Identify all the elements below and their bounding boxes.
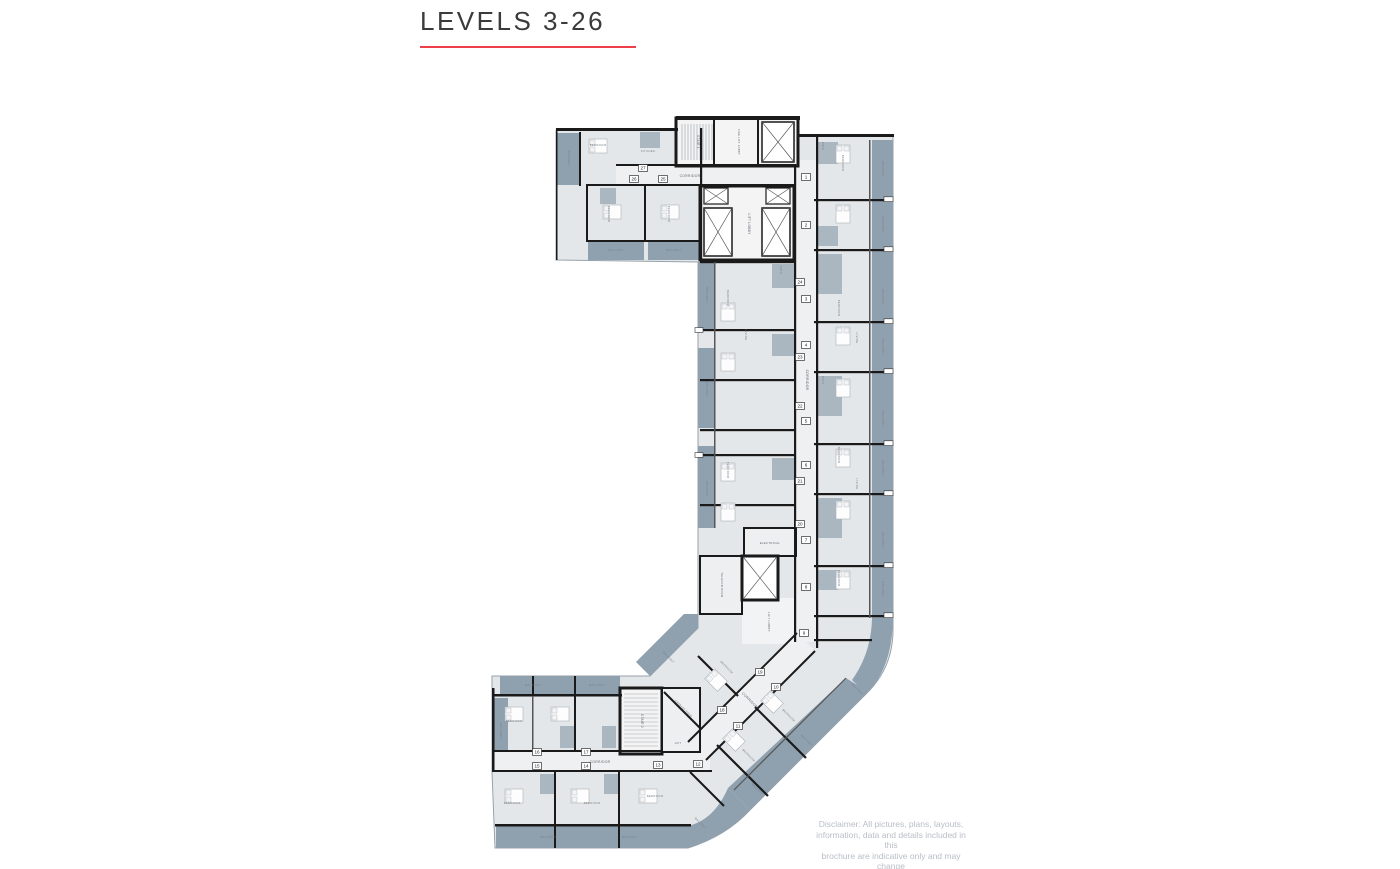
room-label: BALCONY	[881, 339, 885, 354]
area-label: FIRE LIFT LOBBY	[737, 129, 741, 155]
room-label: LIVING	[855, 479, 859, 490]
svg-text:16: 16	[534, 750, 540, 755]
unit-badge: 7	[802, 537, 811, 544]
bath-room	[600, 188, 616, 204]
room-label: BATH	[779, 266, 783, 274]
room-label: BALCONY	[589, 683, 604, 687]
unit-badge: 9	[800, 630, 809, 637]
room-label: BALCONY	[881, 216, 885, 231]
unit-badge: 14	[582, 763, 591, 770]
room-label: BALCONY	[540, 835, 555, 839]
lift-shaft-icon	[704, 188, 728, 204]
room-label: BATH	[821, 376, 825, 384]
svg-text:14: 14	[583, 764, 589, 769]
svg-text:1: 1	[805, 175, 808, 180]
area-label: LIFT LOBBY	[767, 612, 771, 632]
unit-badge: 24	[796, 279, 805, 286]
bath-room	[640, 132, 660, 148]
disclaimer-line: information, data and details included i…	[816, 830, 966, 851]
room-label: BALCONY	[567, 150, 571, 165]
svg-text:26: 26	[631, 177, 637, 182]
room-label: BEDROOM	[726, 462, 730, 479]
room-label: BALCONY	[881, 532, 885, 547]
bath-room	[818, 254, 842, 294]
svg-text:11: 11	[736, 724, 741, 729]
svg-text:5: 5	[805, 419, 808, 424]
bath-room	[818, 570, 838, 590]
area-label: TELECOM ROOM	[720, 573, 724, 598]
unit-badge: 20	[796, 521, 805, 528]
room-label: BALCONY	[666, 248, 681, 252]
unit-badge: 18	[718, 707, 727, 714]
bath-room	[772, 458, 794, 480]
room-label: BEDROOM	[726, 290, 730, 307]
area-label: LIFT	[675, 741, 682, 745]
svg-text:9: 9	[803, 631, 806, 636]
lift-shaft-icon	[762, 208, 790, 256]
disclaimer-line: Disclaimer: All pictures, plans, layouts…	[816, 819, 966, 830]
bath-room	[772, 334, 794, 356]
svg-text:6: 6	[805, 463, 808, 468]
unit-badge: 5	[802, 418, 811, 425]
room-label: BEDROOM	[667, 206, 671, 223]
room-label: BALCONY	[622, 835, 637, 839]
bath-room	[560, 726, 574, 748]
svg-text:10: 10	[773, 685, 779, 690]
room-label: KITCHEN	[641, 149, 655, 153]
svg-text:3: 3	[805, 297, 808, 302]
area-label: STAIR 2	[640, 714, 644, 728]
brochure-page: LEVELS 3-26	[0, 0, 1400, 869]
svg-text:25: 25	[660, 177, 666, 182]
lift-shaft-icon	[704, 208, 732, 256]
svg-text:4: 4	[805, 343, 808, 348]
room-label: BATH	[821, 142, 825, 150]
room-label: BALCONY	[881, 581, 885, 596]
unit-badge: 23	[796, 354, 805, 361]
room-label: BALCONY	[881, 411, 885, 426]
unit-badge: 15	[533, 763, 542, 770]
room-label: BEDROOM	[584, 801, 601, 805]
disclaimer: Disclaimer: All pictures, plans, layouts…	[816, 819, 966, 869]
unit-badge: 19	[756, 669, 765, 676]
bath-room	[602, 726, 616, 748]
room-label: BEDROOM	[504, 801, 521, 805]
unit-badge: 6	[802, 462, 811, 469]
svg-text:21: 21	[797, 479, 803, 484]
room-label: BALCONY	[705, 481, 709, 496]
room-label: BALCONY	[881, 289, 885, 304]
svg-text:17: 17	[583, 750, 589, 755]
disclaimer-line: brochure are indicative only and may cha…	[816, 851, 966, 869]
room-label: BEDROOM	[837, 447, 841, 464]
bath-room	[540, 774, 554, 794]
unit-badge: 10	[772, 684, 781, 691]
svg-text:19: 19	[757, 670, 763, 675]
svg-text:8: 8	[805, 585, 808, 590]
area-label: CORRIDOR	[680, 174, 701, 178]
svg-text:27: 27	[640, 166, 646, 171]
lift-shaft-icon	[762, 122, 794, 162]
unit-badge: 22	[796, 403, 805, 410]
svg-text:15: 15	[534, 764, 540, 769]
area-label: CORRIDOR	[805, 370, 809, 391]
room-label: BEDROOM	[590, 143, 607, 147]
unit-badge: 21	[796, 478, 805, 485]
area-label: STAIR 1	[696, 135, 700, 149]
unit-badge: 26	[630, 176, 639, 183]
unit-badge: 13	[654, 762, 663, 769]
svg-text:7: 7	[805, 538, 808, 543]
floor-plan-svg: CORRIDORCORRIDORCORRIDORCORRIDORSTAIR 1F…	[0, 0, 1400, 869]
room-label: BEDROOM	[841, 155, 845, 172]
room-label: BALCONY	[705, 287, 709, 302]
unit-badge: 25	[659, 176, 668, 183]
room-label: BEDROOM	[837, 570, 841, 587]
room-label: BEDROOM	[837, 300, 841, 317]
room-label: BALCONY	[705, 381, 709, 396]
bath-room	[818, 226, 838, 246]
room-label: LIVING	[744, 330, 748, 341]
room-label: BEDROOM	[506, 719, 523, 723]
room-label: BEDROOM	[647, 794, 664, 798]
svg-text:12: 12	[695, 762, 701, 767]
unit-badge: 11	[734, 723, 743, 730]
unit-badge: 16	[533, 749, 542, 756]
room-label: BALCONY	[499, 723, 503, 738]
corridor-vertical	[796, 160, 816, 642]
area-label: CORRIDOR	[590, 760, 611, 764]
unit-badge: 2	[802, 222, 811, 229]
unit-badge: 27	[639, 165, 648, 172]
lift-shaft-icon	[766, 188, 790, 204]
bath-room	[604, 774, 618, 794]
balcony	[496, 826, 688, 848]
room-label: LIVING	[855, 333, 859, 344]
unit-badge: 12	[694, 761, 703, 768]
unit-badge: 17	[582, 749, 591, 756]
area-label: ELECTRICAL	[760, 541, 780, 545]
unit-badge: 3	[802, 296, 811, 303]
svg-text:13: 13	[655, 763, 661, 768]
bath-room	[818, 142, 838, 164]
svg-text:20: 20	[797, 522, 803, 527]
unit-badge: 8	[802, 584, 811, 591]
svg-text:18: 18	[719, 708, 725, 713]
unit-badge: 4	[802, 342, 811, 349]
svg-text:2: 2	[805, 223, 808, 228]
svg-text:22: 22	[797, 404, 803, 409]
unit-badge: 1	[802, 174, 811, 181]
svg-text:23: 23	[797, 355, 803, 360]
room-label: BALCONY	[608, 248, 623, 252]
room-label: BALCONY	[881, 161, 885, 176]
room-label: BALCONY	[525, 683, 540, 687]
svg-text:24: 24	[797, 280, 803, 285]
room-label: BALCONY	[881, 460, 885, 475]
room-label: BEDROOM	[607, 206, 611, 223]
area-label: LIFT LOBBY	[747, 213, 751, 235]
